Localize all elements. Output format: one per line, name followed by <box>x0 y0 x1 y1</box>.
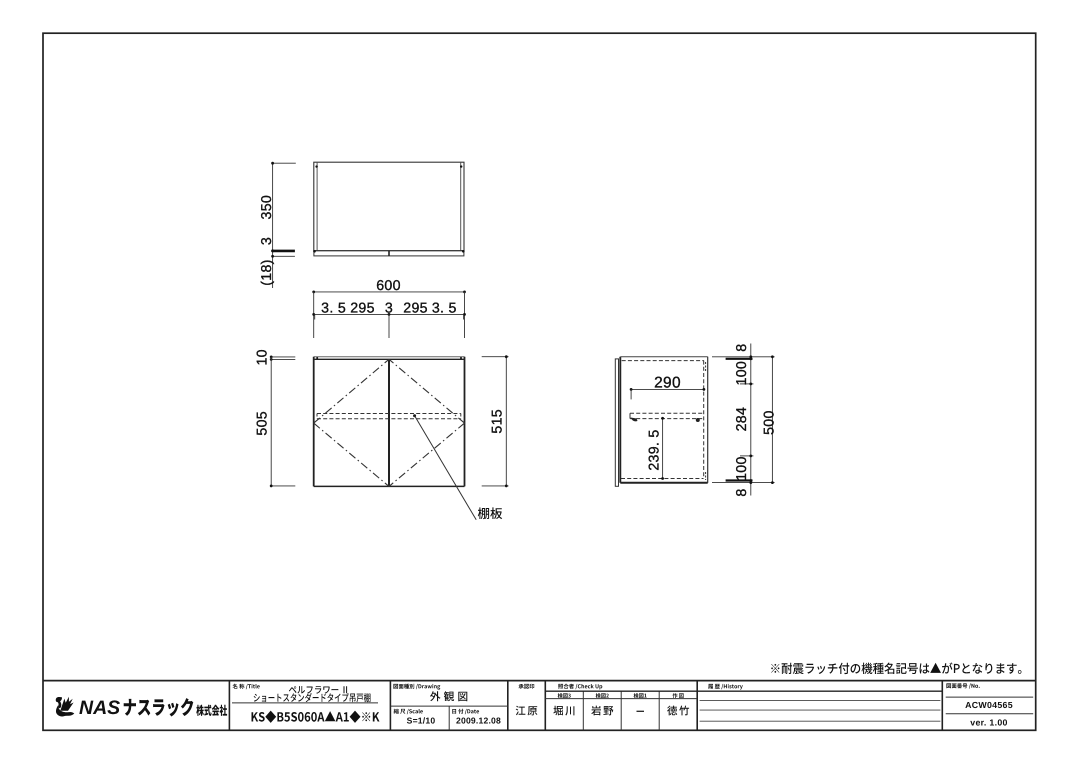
svg-text:515: 515 <box>490 409 506 434</box>
svg-text:3. 5: 3. 5 <box>321 300 346 316</box>
svg-text:NAS: NAS <box>79 697 120 719</box>
svg-text:2009.12.08: 2009.12.08 <box>456 716 501 726</box>
svg-text:284: 284 <box>734 407 750 432</box>
svg-text:8: 8 <box>734 343 750 351</box>
svg-text:3: 3 <box>259 237 275 245</box>
svg-text:500: 500 <box>762 410 778 435</box>
svg-text:ACW04565: ACW04565 <box>965 700 1013 710</box>
svg-text:(18): (18) <box>259 259 275 285</box>
svg-text:100: 100 <box>734 361 750 386</box>
svg-text:100: 100 <box>734 456 750 481</box>
svg-text:3. 5: 3. 5 <box>432 300 457 316</box>
svg-text:ver. 1.00: ver. 1.00 <box>970 718 1007 728</box>
svg-text:505: 505 <box>255 411 271 436</box>
svg-text:10: 10 <box>254 349 270 365</box>
svg-text:295: 295 <box>403 300 428 316</box>
svg-text:8: 8 <box>734 488 750 496</box>
svg-text:239. 5: 239. 5 <box>647 429 663 470</box>
svg-text:S=1/10: S=1/10 <box>407 716 436 726</box>
svg-text:350: 350 <box>259 195 275 220</box>
svg-text:295: 295 <box>350 300 375 316</box>
